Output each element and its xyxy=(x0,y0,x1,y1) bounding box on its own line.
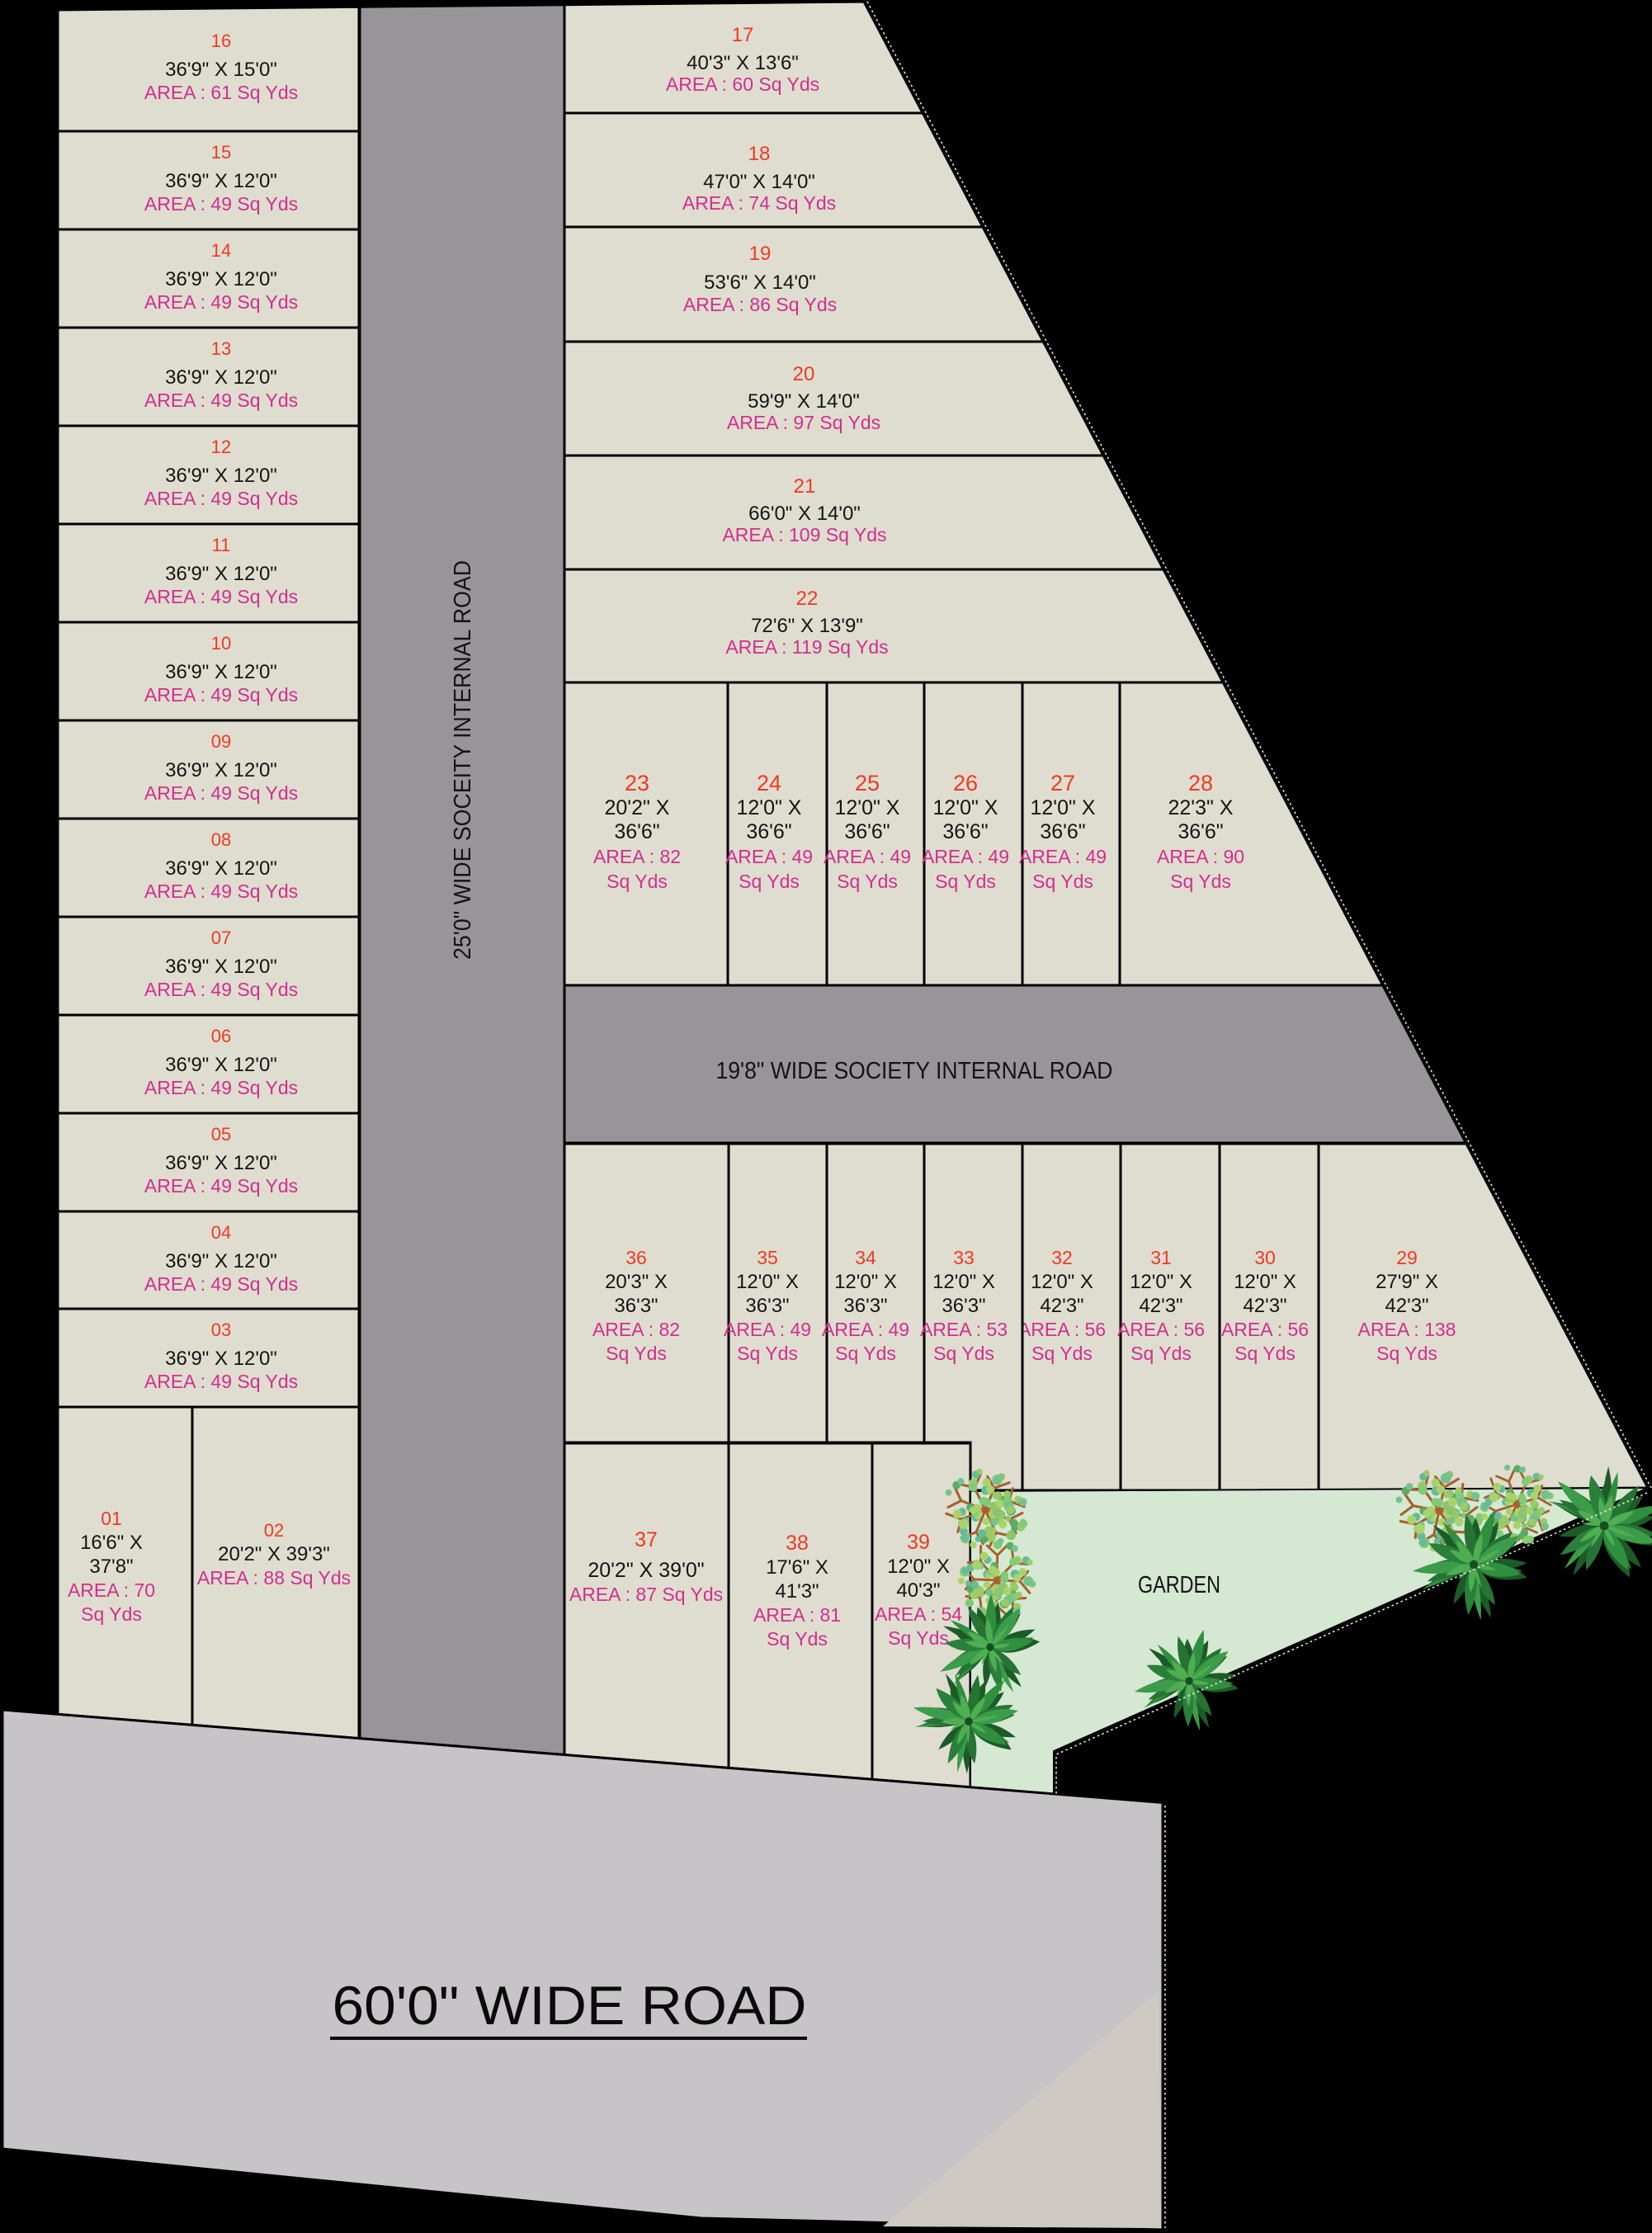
svg-text:Sq Yds: Sq Yds xyxy=(607,871,668,892)
svg-text:66'0" X 14'0": 66'0" X 14'0" xyxy=(748,503,861,525)
svg-text:42'3": 42'3" xyxy=(1139,1295,1182,1317)
svg-text:18: 18 xyxy=(748,143,771,165)
svg-text:21: 21 xyxy=(794,475,816,498)
svg-text:32: 32 xyxy=(1051,1247,1073,1268)
svg-text:36'3": 36'3" xyxy=(843,1295,887,1317)
svg-text:06: 06 xyxy=(211,1026,231,1046)
svg-text:31: 31 xyxy=(1150,1247,1172,1268)
svg-text:05: 05 xyxy=(211,1124,231,1145)
svg-text:47'0" X 14'0": 47'0" X 14'0" xyxy=(703,171,815,193)
svg-text:12'0" X: 12'0" X xyxy=(1031,1271,1093,1293)
svg-text:Sq Yds: Sq Yds xyxy=(1032,871,1093,892)
svg-text:37: 37 xyxy=(635,1528,658,1551)
svg-text:42'3": 42'3" xyxy=(1385,1295,1428,1317)
svg-text:36'6": 36'6" xyxy=(746,820,791,843)
svg-text:42'3": 42'3" xyxy=(1040,1295,1083,1317)
svg-text:AREA : 49 Sq Yds: AREA : 49 Sq Yds xyxy=(144,979,298,1000)
svg-text:AREA : 90: AREA : 90 xyxy=(1157,846,1244,867)
svg-text:36'3": 36'3" xyxy=(614,1295,658,1317)
svg-text:11: 11 xyxy=(212,535,231,555)
svg-text:27'9" X: 27'9" X xyxy=(1376,1271,1438,1293)
svg-text:36'9" X 12'0": 36'9" X 12'0" xyxy=(165,661,277,683)
svg-text:AREA : 49 Sq Yds: AREA : 49 Sq Yds xyxy=(144,782,298,804)
svg-text:12'0" X: 12'0" X xyxy=(737,796,802,819)
svg-text:Sq Yds: Sq Yds xyxy=(835,1343,896,1364)
svg-text:AREA : 49: AREA : 49 xyxy=(824,846,911,867)
svg-text:37'8": 37'8" xyxy=(89,1556,133,1578)
svg-text:12'0" X: 12'0" X xyxy=(1234,1271,1296,1293)
svg-text:03: 03 xyxy=(211,1319,231,1340)
svg-text:12'0" X: 12'0" X xyxy=(834,1271,897,1293)
svg-text:20'2" X: 20'2" X xyxy=(605,796,670,819)
svg-text:40'3" X 13'6": 40'3" X 13'6" xyxy=(687,52,799,74)
svg-text:36'9" X 12'0": 36'9" X 12'0" xyxy=(165,563,277,585)
svg-text:AREA : 56: AREA : 56 xyxy=(1018,1319,1106,1340)
svg-text:26: 26 xyxy=(953,771,978,795)
svg-text:39: 39 xyxy=(907,1531,930,1554)
svg-text:AREA : 109 Sq Yds: AREA : 109 Sq Yds xyxy=(722,524,886,545)
svg-text:36'9" X 12'0": 36'9" X 12'0" xyxy=(165,857,277,880)
svg-text:28: 28 xyxy=(1188,771,1213,795)
svg-text:36'9" X 12'0": 36'9" X 12'0" xyxy=(165,465,277,487)
svg-text:Sq Yds: Sq Yds xyxy=(837,871,898,892)
svg-text:AREA : 74 Sq Yds: AREA : 74 Sq Yds xyxy=(682,192,836,214)
svg-text:Sq Yds: Sq Yds xyxy=(1130,1343,1192,1364)
svg-text:24: 24 xyxy=(757,771,781,795)
svg-text:36'9" X 12'0": 36'9" X 12'0" xyxy=(165,170,277,192)
svg-text:AREA : 81: AREA : 81 xyxy=(753,1604,841,1626)
svg-text:36'9" X 12'0": 36'9" X 12'0" xyxy=(165,1348,277,1370)
svg-text:04: 04 xyxy=(211,1222,231,1243)
svg-text:AREA : 49 Sq Yds: AREA : 49 Sq Yds xyxy=(144,684,298,706)
svg-text:12'0" X: 12'0" X xyxy=(933,796,998,819)
svg-text:60'0" WIDE ROAD: 60'0" WIDE ROAD xyxy=(333,1975,807,2036)
svg-text:36'6": 36'6" xyxy=(942,820,988,843)
svg-text:12: 12 xyxy=(211,437,231,457)
svg-text:12'0" X: 12'0" X xyxy=(887,1556,950,1578)
svg-text:AREA : 56: AREA : 56 xyxy=(1221,1319,1309,1340)
svg-text:15: 15 xyxy=(211,142,231,163)
svg-text:20'2" X 39'0": 20'2" X 39'0" xyxy=(588,1559,704,1582)
svg-text:36'9" X 12'0": 36'9" X 12'0" xyxy=(165,268,277,290)
svg-text:AREA : 56: AREA : 56 xyxy=(1117,1319,1205,1340)
svg-text:42'3": 42'3" xyxy=(1243,1295,1286,1317)
svg-text:AREA : 86 Sq Yds: AREA : 86 Sq Yds xyxy=(683,294,837,315)
svg-text:AREA : 82: AREA : 82 xyxy=(592,1319,680,1340)
svg-text:GARDEN: GARDEN xyxy=(1138,1572,1220,1598)
svg-text:20'2" X 39'3": 20'2" X 39'3" xyxy=(218,1543,330,1565)
svg-text:16: 16 xyxy=(211,31,231,51)
svg-text:AREA : 49: AREA : 49 xyxy=(725,846,813,867)
svg-text:25: 25 xyxy=(855,771,880,795)
svg-text:53'6" X 14'0": 53'6" X 14'0" xyxy=(704,271,816,294)
svg-text:Sq Yds: Sq Yds xyxy=(81,1603,142,1625)
svg-text:14: 14 xyxy=(211,240,231,261)
svg-text:AREA : 87 Sq Yds: AREA : 87 Sq Yds xyxy=(569,1584,723,1605)
svg-text:22'3" X: 22'3" X xyxy=(1168,796,1234,819)
svg-text:36'9" X 12'0": 36'9" X 12'0" xyxy=(165,956,277,978)
svg-text:30: 30 xyxy=(1254,1247,1276,1268)
svg-text:36'9" X 15'0": 36'9" X 15'0" xyxy=(165,59,277,81)
svg-text:Sq Yds: Sq Yds xyxy=(1376,1343,1437,1364)
svg-text:Sq Yds: Sq Yds xyxy=(1031,1343,1093,1364)
svg-text:20'3" X: 20'3" X xyxy=(605,1271,668,1293)
svg-text:36'3": 36'3" xyxy=(745,1295,789,1317)
svg-text:AREA : 49 Sq Yds: AREA : 49 Sq Yds xyxy=(144,880,298,902)
svg-text:AREA : 49 Sq Yds: AREA : 49 Sq Yds xyxy=(144,1077,298,1098)
svg-text:12'0" X: 12'0" X xyxy=(932,1271,995,1293)
svg-text:Sq Yds: Sq Yds xyxy=(1234,1343,1296,1364)
svg-text:Sq Yds: Sq Yds xyxy=(737,1343,798,1364)
svg-text:Sq Yds: Sq Yds xyxy=(606,1343,667,1364)
svg-text:36'6": 36'6" xyxy=(1040,820,1085,843)
svg-text:16'6" X: 16'6" X xyxy=(80,1532,143,1554)
svg-text:AREA : 49 Sq Yds: AREA : 49 Sq Yds xyxy=(144,291,298,313)
svg-text:29: 29 xyxy=(1396,1247,1418,1268)
svg-text:AREA : 49 Sq Yds: AREA : 49 Sq Yds xyxy=(144,1371,298,1392)
svg-text:20: 20 xyxy=(793,363,815,385)
svg-text:AREA : 49 Sq Yds: AREA : 49 Sq Yds xyxy=(144,1175,298,1197)
svg-text:25'0" WIDE SOCEITY INTERNAL RO: 25'0" WIDE SOCEITY INTERNAL ROAD xyxy=(450,560,476,960)
svg-text:12'0" X: 12'0" X xyxy=(1130,1271,1192,1293)
svg-text:10: 10 xyxy=(211,633,231,654)
svg-text:01: 01 xyxy=(101,1508,122,1529)
svg-text:17'6" X: 17'6" X xyxy=(766,1556,828,1579)
svg-text:27: 27 xyxy=(1050,771,1075,795)
svg-text:AREA : 49 Sq Yds: AREA : 49 Sq Yds xyxy=(144,1273,298,1295)
svg-text:22: 22 xyxy=(796,588,819,610)
svg-text:Sq Yds: Sq Yds xyxy=(1170,871,1231,892)
svg-text:36'6": 36'6" xyxy=(614,820,659,843)
svg-text:AREA : 49: AREA : 49 xyxy=(822,1319,909,1340)
svg-text:36'9" X 12'0": 36'9" X 12'0" xyxy=(165,366,277,389)
svg-text:17: 17 xyxy=(732,24,754,46)
svg-text:AREA : 49: AREA : 49 xyxy=(1019,846,1107,867)
svg-text:Sq Yds: Sq Yds xyxy=(935,871,996,892)
svg-text:AREA : 49 Sq Yds: AREA : 49 Sq Yds xyxy=(144,488,298,509)
svg-text:13: 13 xyxy=(211,338,231,359)
svg-text:AREA : 54: AREA : 54 xyxy=(875,1603,962,1625)
svg-text:40'3": 40'3" xyxy=(896,1579,940,1602)
svg-text:36'9" X 12'0": 36'9" X 12'0" xyxy=(165,1054,277,1076)
svg-text:AREA : 82: AREA : 82 xyxy=(593,846,681,867)
svg-text:33: 33 xyxy=(953,1247,975,1268)
svg-text:AREA : 60 Sq Yds: AREA : 60 Sq Yds xyxy=(666,73,819,95)
svg-text:AREA : 49: AREA : 49 xyxy=(922,846,1009,867)
svg-text:36'6": 36'6" xyxy=(844,820,890,843)
svg-text:35: 35 xyxy=(757,1247,778,1268)
svg-text:59'9" X 14'0": 59'9" X 14'0" xyxy=(748,390,860,413)
svg-text:07: 07 xyxy=(211,928,231,948)
svg-text:23: 23 xyxy=(625,771,649,795)
svg-text:AREA : 49 Sq Yds: AREA : 49 Sq Yds xyxy=(144,586,298,607)
svg-text:12'0" X: 12'0" X xyxy=(736,1271,799,1293)
svg-text:38: 38 xyxy=(786,1532,809,1555)
svg-text:AREA : 61 Sq Yds: AREA : 61 Sq Yds xyxy=(144,82,298,103)
svg-text:Sq Yds: Sq Yds xyxy=(933,1343,994,1364)
svg-text:08: 08 xyxy=(211,829,231,850)
svg-text:AREA : 119 Sq Yds: AREA : 119 Sq Yds xyxy=(725,636,888,658)
svg-text:AREA : 49: AREA : 49 xyxy=(724,1319,811,1340)
svg-text:36'9" X 12'0": 36'9" X 12'0" xyxy=(165,1250,277,1272)
svg-text:AREA : 138: AREA : 138 xyxy=(1358,1319,1456,1340)
svg-text:36'3": 36'3" xyxy=(942,1295,985,1317)
svg-text:36'9" X 12'0": 36'9" X 12'0" xyxy=(165,1152,277,1174)
svg-text:41'3": 41'3" xyxy=(775,1580,819,1603)
svg-text:AREA : 88 Sq Yds: AREA : 88 Sq Yds xyxy=(197,1567,351,1589)
svg-text:AREA : 49 Sq Yds: AREA : 49 Sq Yds xyxy=(144,193,298,215)
svg-text:Sq Yds: Sq Yds xyxy=(888,1627,949,1649)
svg-text:AREA : 53: AREA : 53 xyxy=(920,1319,1008,1340)
svg-text:AREA : 97 Sq Yds: AREA : 97 Sq Yds xyxy=(727,412,880,433)
svg-text:AREA : 49 Sq Yds: AREA : 49 Sq Yds xyxy=(144,389,298,411)
svg-text:72'6" X 13'9": 72'6" X 13'9" xyxy=(751,615,863,637)
svg-text:19: 19 xyxy=(749,243,772,265)
svg-text:36'9" X 12'0": 36'9" X 12'0" xyxy=(165,759,277,781)
svg-text:AREA : 70: AREA : 70 xyxy=(68,1579,155,1601)
svg-text:36: 36 xyxy=(625,1247,647,1268)
svg-text:Sq Yds: Sq Yds xyxy=(767,1628,828,1650)
svg-text:09: 09 xyxy=(211,731,231,752)
svg-text:12'0" X: 12'0" X xyxy=(835,796,900,819)
svg-text:34: 34 xyxy=(855,1247,876,1268)
svg-text:19'8" WIDE SOCIETY INTERNAL RO: 19'8" WIDE SOCIETY INTERNAL ROAD xyxy=(716,1058,1113,1084)
svg-text:36'6": 36'6" xyxy=(1178,820,1223,843)
svg-text:Sq Yds: Sq Yds xyxy=(739,871,800,892)
svg-text:02: 02 xyxy=(264,1520,284,1541)
svg-text:12'0" X: 12'0" X xyxy=(1031,796,1096,819)
